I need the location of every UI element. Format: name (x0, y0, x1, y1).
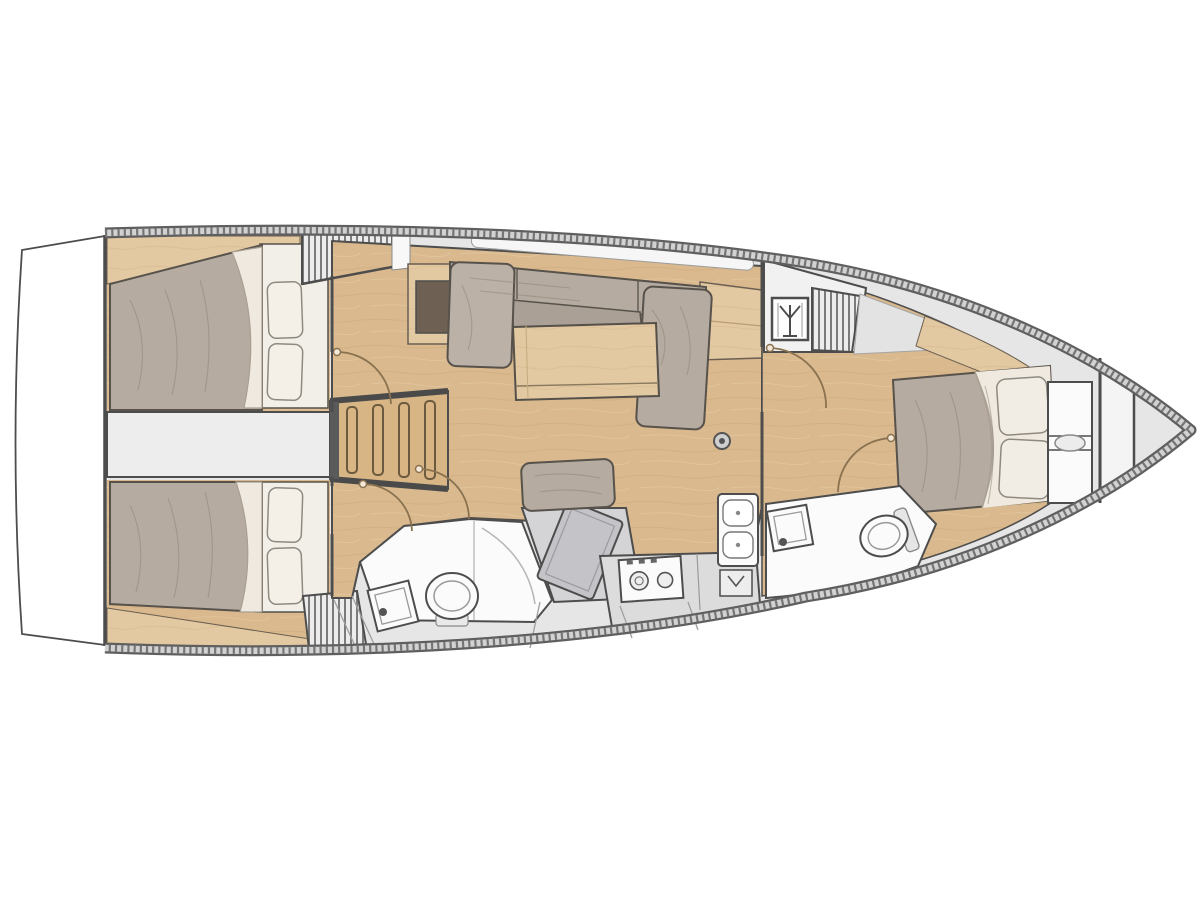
nav-seat (521, 459, 615, 512)
hanging-locker (303, 591, 366, 649)
ladder-step (347, 407, 357, 473)
chaise-cushion-left (447, 262, 515, 368)
pillow (267, 547, 303, 604)
yacht-floorplan-diagram (0, 0, 1200, 900)
hanging-locker (812, 288, 860, 352)
shelf-handle (1055, 435, 1085, 451)
pillow (267, 343, 303, 400)
door-pivot (334, 349, 341, 356)
ladder-side (330, 402, 339, 479)
stove (619, 556, 684, 602)
pillow (267, 487, 303, 542)
washbasin (767, 505, 813, 551)
pillow (267, 281, 303, 338)
ladder-step (399, 403, 409, 477)
pillow (999, 439, 1052, 500)
folding-table (513, 323, 659, 400)
door-pivot (416, 466, 423, 473)
companionway-ladder (330, 391, 448, 489)
sink-drain (736, 543, 740, 547)
faucet (379, 608, 387, 616)
aft-cabin-port (107, 480, 366, 649)
ladder-step (425, 401, 435, 479)
door-pivot (888, 435, 895, 442)
pillow (996, 376, 1050, 435)
washbasin (368, 581, 419, 632)
swim-platform (16, 236, 106, 645)
sink-drain (736, 511, 740, 515)
engine-corridor (107, 412, 330, 477)
salon-table-group (513, 323, 659, 400)
tv-panel (416, 281, 453, 333)
yacht-floorplan-page (0, 0, 1200, 900)
faucet (779, 538, 787, 546)
ladder-step (373, 405, 383, 475)
floor-socket-pin (719, 438, 725, 444)
double-berth (110, 482, 262, 612)
locker-front (720, 570, 752, 596)
door-pivot (360, 481, 367, 488)
door-pivot (767, 345, 774, 352)
